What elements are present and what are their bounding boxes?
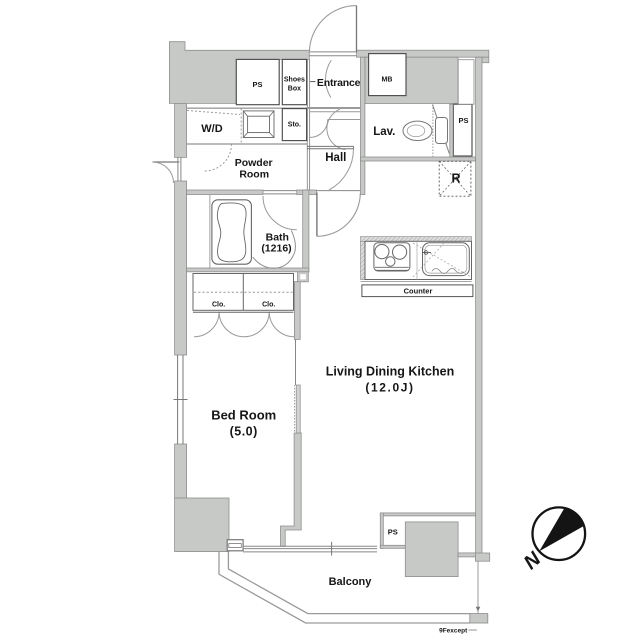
svg-text:Box: Box bbox=[288, 86, 301, 93]
svg-text:PS: PS bbox=[388, 528, 398, 537]
svg-text:Clo.: Clo. bbox=[262, 302, 275, 309]
svg-text:Room: Room bbox=[239, 168, 269, 180]
svg-text:Entrance: Entrance bbox=[317, 77, 361, 89]
svg-text:W/D: W/D bbox=[201, 123, 222, 135]
svg-text:Living Dining Kitchen: Living Dining Kitchen bbox=[326, 365, 454, 379]
svg-text:R: R bbox=[451, 172, 460, 186]
svg-text:PS: PS bbox=[458, 116, 468, 125]
svg-text:Powder: Powder bbox=[235, 157, 273, 169]
svg-text:(1216): (1216) bbox=[261, 243, 291, 255]
svg-text:Sto.: Sto. bbox=[288, 122, 301, 129]
svg-text:Balcony: Balcony bbox=[329, 576, 373, 588]
svg-text:Hall: Hall bbox=[325, 152, 346, 164]
svg-text:PS: PS bbox=[252, 80, 262, 89]
svg-text:(12.0J): (12.0J) bbox=[365, 381, 414, 395]
svg-text:(5.0): (5.0) bbox=[230, 425, 258, 439]
svg-text:9Fexcept: 9Fexcept bbox=[439, 628, 468, 635]
svg-text:Counter: Counter bbox=[404, 287, 433, 296]
svg-text:Bed Room: Bed Room bbox=[211, 408, 276, 423]
svg-text:Clo.: Clo. bbox=[212, 302, 225, 309]
svg-text:Shoes: Shoes bbox=[284, 77, 305, 84]
svg-text:MB: MB bbox=[382, 77, 393, 84]
svg-text:Lav.: Lav. bbox=[373, 126, 395, 138]
